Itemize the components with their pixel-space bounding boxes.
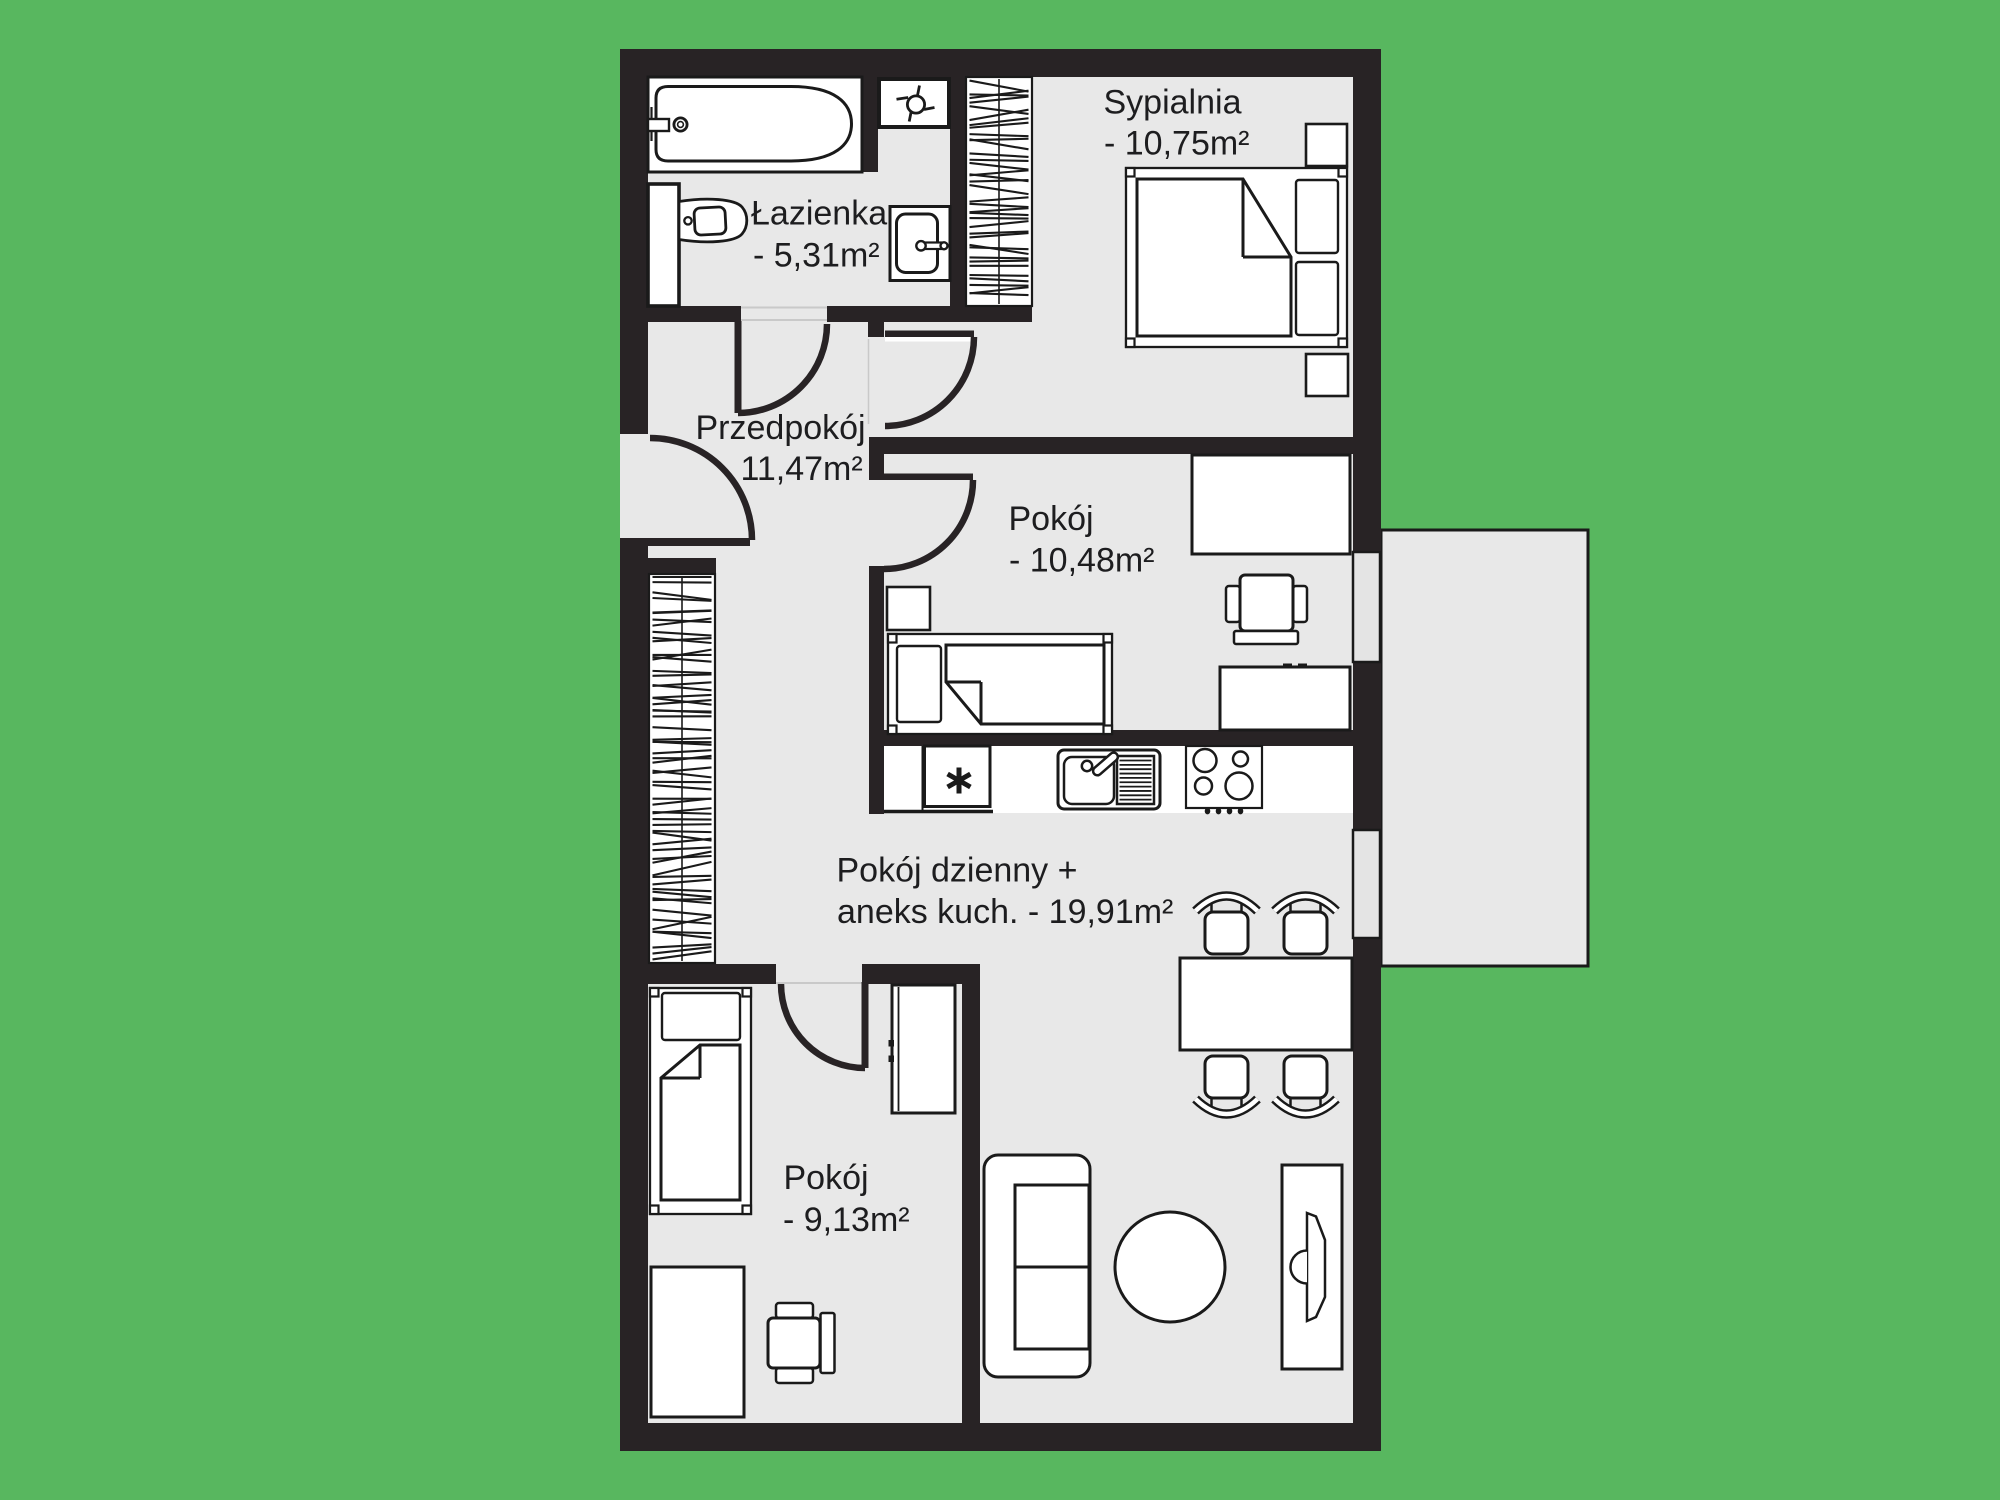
svg-text:Przedpokój: Przedpokój bbox=[696, 409, 866, 447]
svg-text:Pokój: Pokój bbox=[784, 1159, 869, 1197]
svg-text:Łazienka: Łazienka bbox=[751, 195, 887, 233]
svg-text:- 9,13m²: - 9,13m² bbox=[783, 1201, 910, 1239]
svg-text:Pokój: Pokój bbox=[1009, 500, 1094, 538]
svg-text:Sypialnia: Sypialnia bbox=[1104, 84, 1242, 122]
svg-text:Pokój dzienny +: Pokój dzienny + bbox=[837, 852, 1078, 890]
svg-text:- 5,31m²: - 5,31m² bbox=[753, 237, 880, 275]
svg-text:aneks kuch. - 19,91m²: aneks kuch. - 19,91m² bbox=[837, 893, 1173, 931]
svg-text:- 10,75m²: - 10,75m² bbox=[1104, 125, 1250, 163]
svg-text:11,47m²: 11,47m² bbox=[741, 450, 863, 488]
svg-text:- 10,48m²: - 10,48m² bbox=[1009, 541, 1155, 579]
